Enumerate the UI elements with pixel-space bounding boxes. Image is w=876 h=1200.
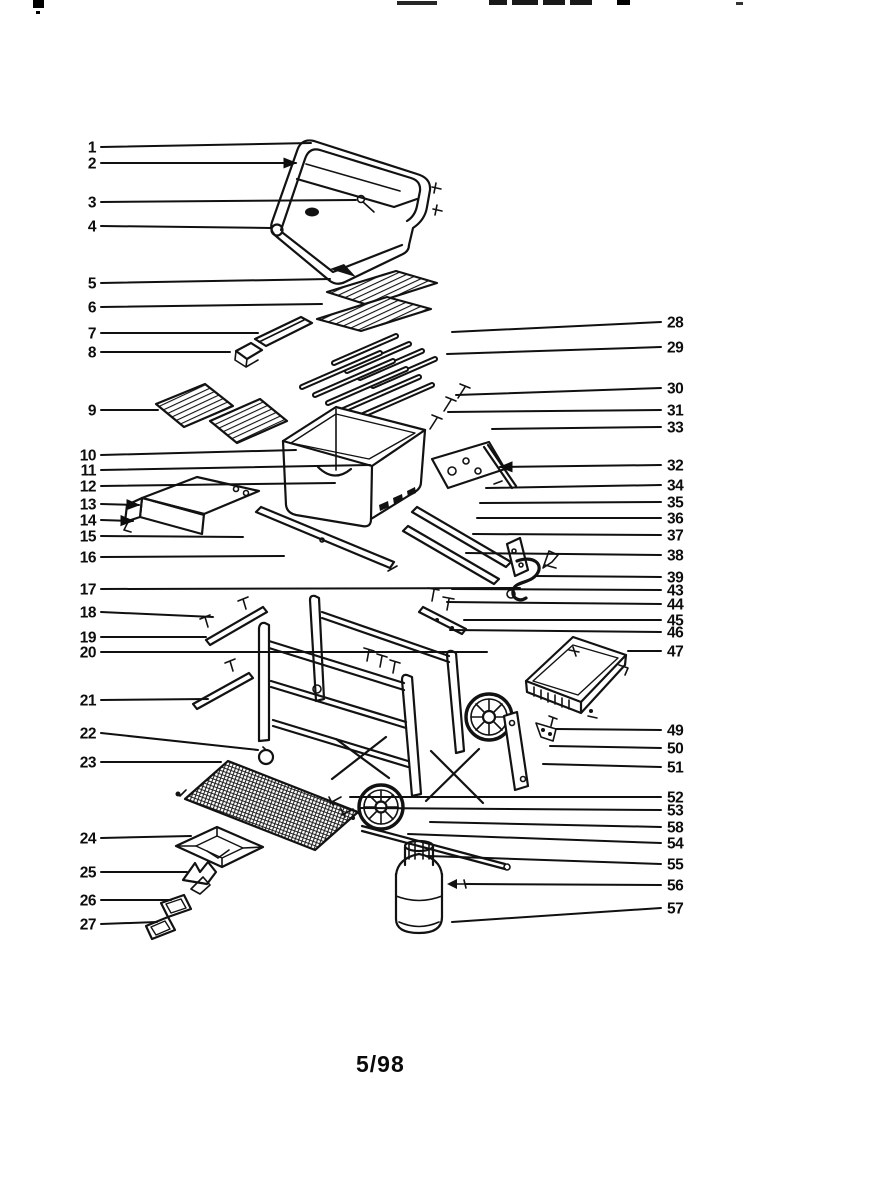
rock-grate-support-drawing [235,317,312,367]
callout-6: 6 [88,300,322,317]
callout-19: 19 [80,630,206,647]
part-number-51: 51 [667,760,684,777]
callout-44: 44 [447,597,684,614]
part-number-24: 24 [80,831,97,848]
leader-line-22 [101,733,258,750]
burner-assembly-drawing [302,336,435,419]
leader-line-5 [101,279,330,283]
part-number-17: 17 [80,582,96,599]
leader-line-56 [466,884,661,885]
leader-line-3 [101,200,356,202]
callout-53: 53 [360,803,684,820]
leader-line-27 [101,922,157,924]
callout-16: 16 [80,550,284,567]
caster-drawing [259,750,273,764]
leader-line-21 [101,699,208,700]
part-number-25: 25 [80,865,97,882]
part-number-6: 6 [88,300,97,317]
leader-line-39 [535,576,661,577]
cooking-grate-drawings [317,271,437,331]
leader-line-53 [360,808,661,810]
callout-21: 21 [80,693,208,710]
part-number-32: 32 [667,458,683,475]
part-number-16: 16 [80,550,97,567]
part-number-12: 12 [80,479,96,496]
grease-tray-drawing [176,827,263,867]
leader-line-32 [500,465,661,467]
callout-50: 50 [550,741,683,758]
grill-drawing [124,140,628,939]
part-number-36: 36 [667,511,684,528]
leader-line-11 [101,465,370,470]
part-number-34: 34 [667,478,684,495]
part-number-47: 47 [667,644,683,661]
leader-line-55 [428,856,661,864]
callout-29: 29 [447,340,684,357]
part-number-37: 37 [667,528,683,545]
callout-18: 18 [80,605,213,622]
leader-line-58 [430,822,661,827]
leader-line-54 [408,834,661,843]
part-number-55: 55 [667,857,684,874]
callout-2: 2 [88,156,296,173]
callout-27: 27 [80,917,157,934]
part-number-30: 30 [667,381,683,398]
callout-45: 45 [464,613,684,630]
callout-33: 33 [492,420,684,437]
part-number-31: 31 [667,403,684,420]
part-number-2: 2 [88,156,96,173]
callout-46: 46 [450,625,684,642]
callout-23: 23 [80,755,221,772]
callout-11: 11 [81,463,370,480]
mounting-screw-drawings [430,384,470,429]
leader-line-31 [448,410,661,412]
leader-line-10 [101,450,296,455]
leader-line-24 [101,836,191,838]
leader-line-51 [543,764,661,767]
leader-line-43 [452,589,661,590]
leader-line-15 [101,536,243,537]
part-number-18: 18 [80,605,97,622]
part-number-54: 54 [667,836,684,853]
leader-line-13 [101,504,139,505]
callout-7: 7 [88,326,258,343]
callout-31: 31 [448,403,684,420]
leader-line-50 [550,746,661,748]
callout-25: 25 [80,865,187,882]
date-code: 5/98 [356,1051,405,1078]
leader-line-33 [492,427,661,429]
part-number-3: 3 [88,195,97,212]
side-rail-drawings [403,507,558,634]
part-number-7: 7 [88,326,96,343]
callout-37: 37 [473,528,683,545]
side-shelf-drawing [526,637,628,718]
callout-58: 58 [430,820,684,837]
callout-49: 49 [556,723,684,740]
part-number-8: 8 [88,345,97,362]
callout-57: 57 [452,901,683,923]
part-number-57: 57 [667,901,683,918]
part-number-29: 29 [667,340,684,357]
part-number-49: 49 [667,723,684,740]
lava-rock-grate-drawings [156,384,287,443]
leader-line-57 [452,908,661,922]
leader-line-49 [556,729,661,730]
part-number-44: 44 [667,597,684,614]
part-number-50: 50 [667,741,683,758]
callout-15: 15 [80,529,243,546]
leader-line-14 [101,520,133,521]
wheel-axle-plate-drawings [466,694,557,790]
leader-line-44 [447,602,661,604]
callout-24: 24 [80,831,191,848]
callout-51: 51 [543,760,684,777]
callout-5: 5 [88,276,330,293]
leader-line-38 [466,553,661,555]
part-number-53: 53 [667,803,684,820]
part-number-33: 33 [667,420,684,437]
part-number-27: 27 [80,917,96,934]
lid-assembly-drawing [271,140,442,283]
part-number-14: 14 [80,513,97,530]
callout-28: 28 [452,315,684,333]
leader-line-1 [101,143,311,147]
callout-30: 30 [456,381,683,398]
callout-47: 47 [628,644,683,661]
callout-39: 39 [535,570,684,587]
part-number-26: 26 [80,893,97,910]
leader-line-18 [101,612,213,617]
part-number-56: 56 [667,878,684,895]
scan-artifacts [33,0,743,14]
part-number-58: 58 [667,820,684,837]
callout-26: 26 [80,893,171,910]
callout-36: 36 [477,511,684,528]
leader-line-35 [480,502,661,503]
leader-line-46 [450,630,661,632]
part-number-35: 35 [667,495,684,512]
callout-56: 56 [466,878,684,895]
leader-line-16 [101,556,284,557]
leader-line-30 [456,388,661,395]
part-number-28: 28 [667,315,684,332]
parts-diagram-page: 1234567891011121314151617181920212223242… [0,0,876,1200]
part-number-38: 38 [667,548,684,565]
callout-43: 43 [452,583,684,600]
part-number-21: 21 [80,693,97,710]
part-number-20: 20 [80,645,96,662]
callout-32: 32 [500,458,683,475]
part-number-15: 15 [80,529,97,546]
tank-screw-arrow [447,879,457,889]
part-number-11: 11 [81,463,97,480]
part-number-5: 5 [88,276,97,293]
callout-35: 35 [480,495,684,512]
leader-line-29 [447,347,661,354]
part-number-46: 46 [667,625,684,642]
exploded-diagram: 1234567891011121314151617181920212223242… [0,0,876,1200]
leader-line-4 [101,226,271,228]
part-number-9: 9 [88,403,97,420]
callout-22: 22 [80,726,258,751]
igniter-plate-drawing [432,442,516,488]
part-number-23: 23 [80,755,97,772]
callout-8: 8 [88,345,230,362]
callout-4: 4 [88,219,271,236]
part-number-4: 4 [88,219,97,236]
leader-line-37 [473,534,661,535]
part-number-13: 13 [80,497,97,514]
part-number-1: 1 [88,140,97,157]
callout-9: 9 [88,403,158,420]
callout-1: 1 [88,140,311,157]
leader-line-28 [452,322,661,332]
callout-10: 10 [80,448,296,465]
leader-line-6 [101,304,322,307]
lid-logo-plate [305,208,319,217]
part-number-22: 22 [80,726,96,743]
